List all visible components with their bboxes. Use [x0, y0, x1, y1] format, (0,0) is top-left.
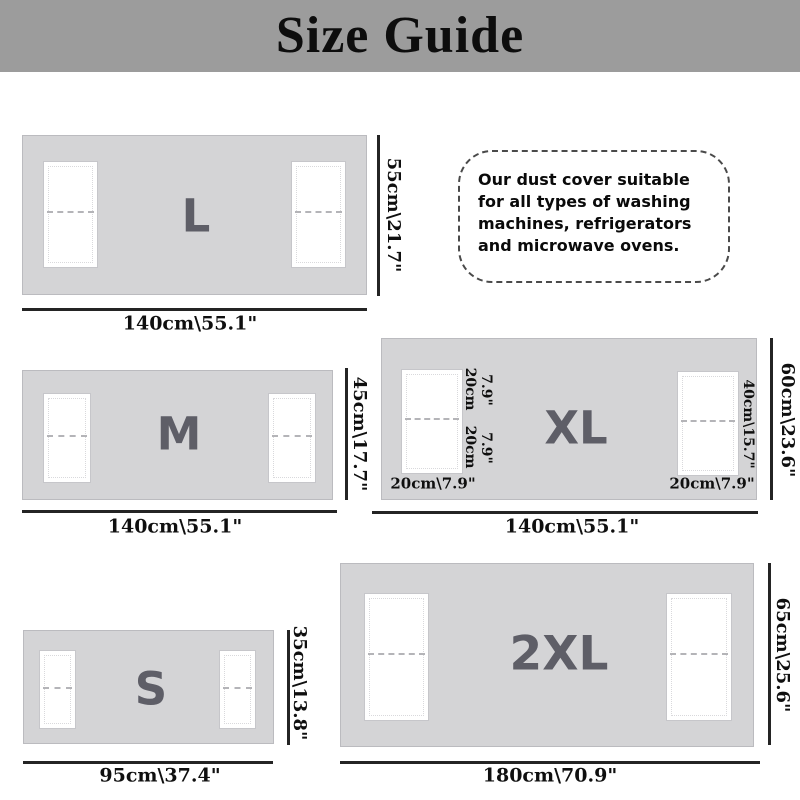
size-diagram-2xl: 2XL 65cm\25.6" 180cm\70.9": [340, 563, 800, 793]
size-label: M: [157, 412, 202, 457]
header-banner: Size Guide: [0, 0, 800, 72]
height-dim-line: [770, 338, 773, 500]
left-pocket-width-label: 20cm\7.9": [390, 477, 475, 492]
height-dim-label: 55cm\21.7": [384, 158, 402, 273]
size-label: L: [182, 194, 211, 239]
height-dim-label: 35cm\13.8": [290, 626, 308, 741]
right-pocket-width-label: 20cm\7.9": [669, 477, 754, 492]
size-guide-page: Size Guide Our dust cover suitable for a…: [0, 0, 800, 800]
cover-rect: S: [23, 630, 274, 744]
width-dim-line: [22, 510, 337, 513]
cover-rect: L: [22, 135, 367, 295]
note-line: machines, refrigerators: [478, 213, 714, 235]
pocket-right: [677, 371, 739, 476]
note-line: and microwave ovens.: [478, 235, 714, 257]
pocket-left: [364, 593, 429, 721]
size-diagram-s: S 35cm\13.8" 95cm\37.4": [23, 630, 353, 790]
height-dim-label: 65cm\25.6": [773, 598, 791, 713]
pocket-right: [219, 650, 256, 729]
height-dim-line: [768, 563, 771, 745]
left-pocket-bottom-cm-label: 20cm: [463, 426, 477, 469]
size-label: S: [135, 667, 167, 712]
note-bubble: Our dust cover suitable for all types of…: [458, 150, 730, 283]
width-dim-label: 140cm\55.1": [505, 518, 639, 537]
pocket-left: [43, 393, 91, 483]
width-dim-label: 140cm\55.1": [108, 518, 242, 537]
width-dim-label: 140cm\55.1": [123, 315, 257, 334]
page-title: Size Guide: [276, 10, 524, 62]
pocket-left: [39, 650, 76, 729]
left-pocket-bottom-in-label: 7.9": [479, 432, 493, 464]
height-dim-label: 60cm\23.6": [778, 363, 796, 478]
pocket-left: [43, 161, 98, 268]
size-diagram-m: M 45cm\17.7" 140cm\55.1": [22, 370, 392, 545]
note-line: Our dust cover suitable: [478, 169, 714, 191]
pocket-right: [666, 593, 732, 721]
pocket-left: [401, 369, 463, 474]
height-dim-label: 45cm\17.7": [350, 377, 368, 492]
note-line: for all types of washing: [478, 191, 714, 213]
size-diagram-xl: XL 20cm 7.9" 20cm 7.9" 20cm\7.9" 40cm\15…: [381, 338, 800, 543]
height-dim-line: [377, 135, 380, 296]
width-dim-line: [22, 308, 367, 311]
width-dim-label: 95cm\37.4": [99, 767, 220, 786]
pocket-right: [291, 161, 346, 268]
cover-rect: 2XL: [340, 563, 754, 747]
size-label: 2XL: [510, 631, 609, 678]
right-pocket-height-label: 40cm\15.7": [741, 379, 755, 468]
size-label: XL: [544, 406, 607, 451]
size-diagram-l: L 55cm\21.7" 140cm\55.1": [22, 135, 422, 340]
width-dim-label: 180cm\70.9": [483, 767, 617, 786]
left-pocket-top-in-label: 7.9": [479, 374, 493, 406]
left-pocket-top-cm-label: 20cm: [463, 368, 477, 411]
pocket-right: [268, 393, 316, 483]
cover-rect: M: [22, 370, 333, 500]
height-dim-line: [345, 368, 348, 500]
width-dim-line: [372, 511, 758, 514]
